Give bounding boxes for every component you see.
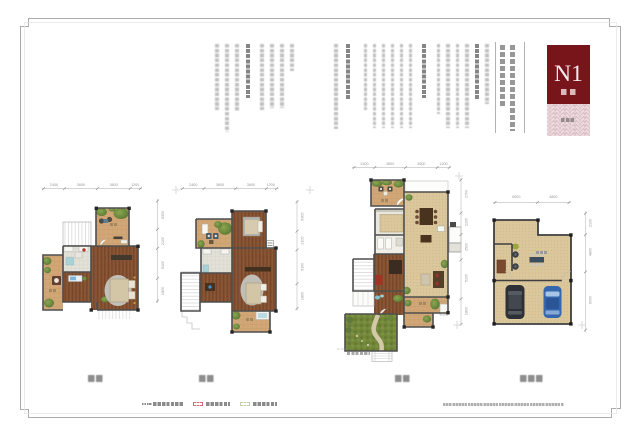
- svg-text:5100: 5100: [161, 261, 165, 269]
- svg-text:1200: 1200: [439, 162, 447, 166]
- svg-text:3600: 3600: [247, 183, 255, 187]
- svg-text:3600: 3600: [216, 183, 224, 187]
- svg-text:6000: 6000: [512, 195, 520, 199]
- svg-text:1800: 1800: [161, 287, 165, 295]
- svg-text:2100: 2100: [301, 236, 305, 244]
- svg-text:6300: 6300: [301, 212, 305, 220]
- svg-text:2400: 2400: [360, 162, 368, 166]
- svg-text:2400: 2400: [189, 183, 197, 187]
- svg-text:4800: 4800: [549, 195, 557, 199]
- svg-text:5100: 5100: [301, 263, 305, 271]
- svg-text:3600: 3600: [110, 183, 118, 187]
- svg-text:2100: 2100: [465, 218, 469, 226]
- svg-text:3600: 3600: [77, 183, 85, 187]
- svg-text:3600: 3600: [417, 162, 425, 166]
- svg-text:6000: 6000: [589, 296, 593, 304]
- svg-text:1800: 1800: [301, 292, 305, 300]
- svg-text:1200: 1200: [131, 183, 139, 187]
- svg-text:6300: 6300: [161, 211, 165, 219]
- svg-text:2500: 2500: [465, 243, 469, 251]
- svg-text:4800: 4800: [589, 248, 593, 256]
- svg-text:2100: 2100: [161, 237, 165, 245]
- svg-text:1200: 1200: [267, 183, 275, 187]
- svg-text:2100: 2100: [589, 219, 593, 227]
- svg-text:N1: N1: [554, 61, 583, 87]
- svg-text:2400: 2400: [50, 183, 58, 187]
- svg-text:2700: 2700: [465, 190, 469, 198]
- svg-text:3600: 3600: [386, 162, 394, 166]
- svg-text:1800: 1800: [465, 307, 469, 315]
- svg-text:5100: 5100: [465, 274, 469, 282]
